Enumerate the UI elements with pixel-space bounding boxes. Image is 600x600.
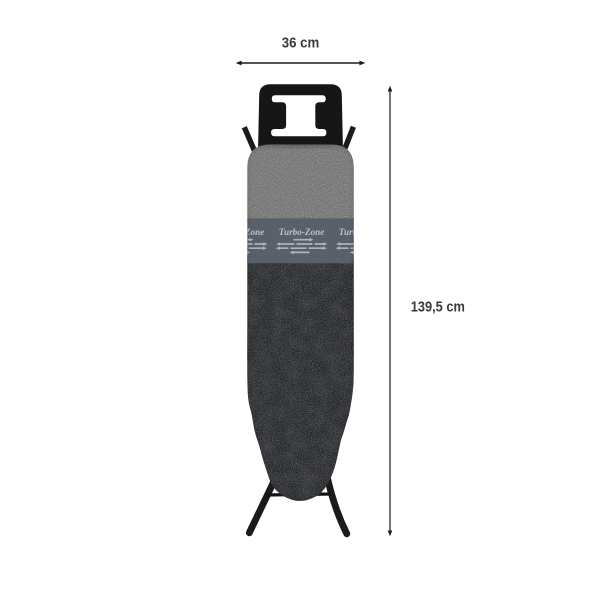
svg-text:36 cm: 36 cm (282, 34, 320, 51)
svg-text:139,5 cm: 139,5 cm (411, 299, 465, 315)
svg-text:Turbo-Zone: Turbo-Zone (279, 227, 325, 237)
